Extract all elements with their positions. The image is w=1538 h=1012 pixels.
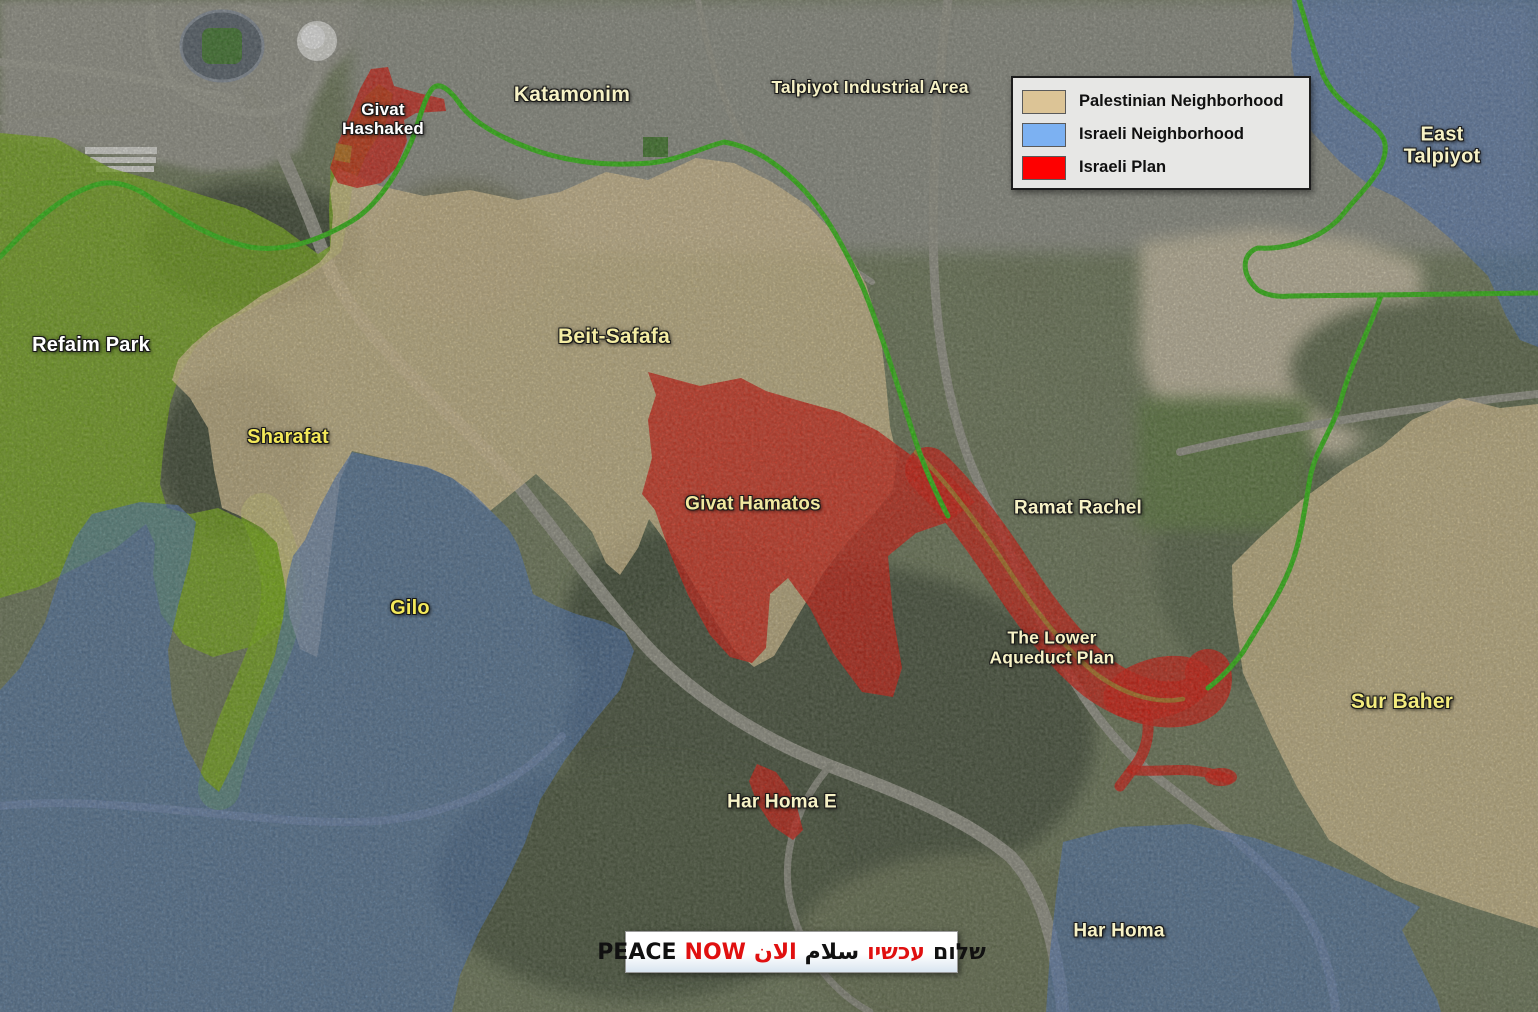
- palestinian-swatch-icon: [1022, 90, 1066, 114]
- logo-word-now: NOW: [685, 940, 746, 965]
- legend-item-palestinian: Palestinian Neighborhood: [1022, 85, 1309, 118]
- logo-word-alan-arabic: الان: [754, 940, 797, 965]
- logo-word-shalom-hebrew: שלום: [933, 940, 986, 965]
- legend: Palestinian Neighborhood Israeli Neighbo…: [1011, 76, 1311, 190]
- legend-item-label: Israeli Neighborhood: [1079, 125, 1244, 144]
- israeli-swatch-icon: [1022, 123, 1066, 147]
- legend-item-label: Israeli Plan: [1079, 158, 1166, 177]
- legend-item-label: Palestinian Neighborhood: [1079, 92, 1283, 111]
- logo-word-peace: PEACE: [597, 940, 676, 965]
- legend-item-israeli: Israeli Neighborhood: [1022, 118, 1309, 151]
- logo-word-salam-arabic: سلام: [805, 940, 859, 965]
- logo-word-achshav-hebrew: עכשיו: [867, 940, 925, 965]
- plan-swatch-icon: [1022, 156, 1066, 180]
- jerusalem-settlement-map: Refaim Park Givat Hashaked Katamonim Tal…: [0, 0, 1538, 1012]
- peace-now-logo: PEACE NOW الان سلام עכשיו שלום: [625, 931, 958, 973]
- legend-item-plan: Israeli Plan: [1022, 151, 1309, 184]
